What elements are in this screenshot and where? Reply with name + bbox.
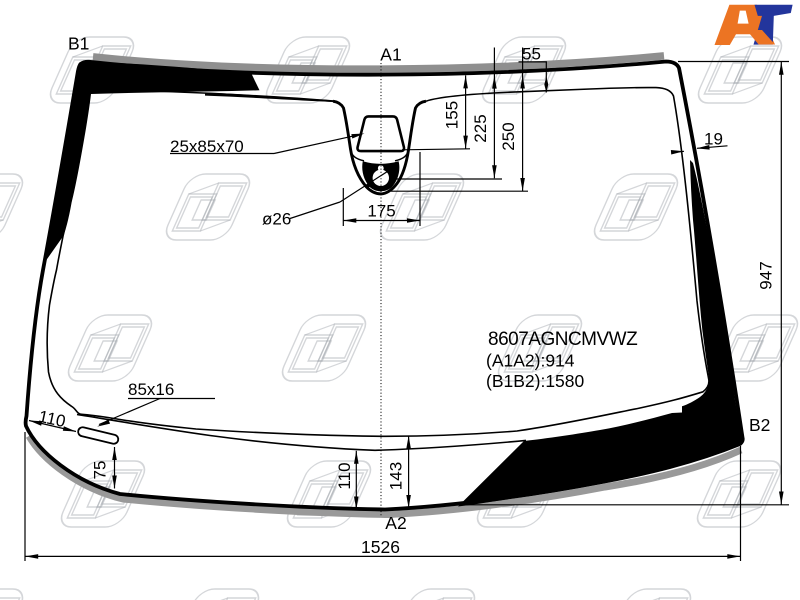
svg-text:A1: A1 [380, 45, 401, 65]
svg-text:143: 143 [387, 462, 406, 490]
svg-text:8607AGNCMVWZ: 8607AGNCMVWZ [488, 329, 638, 350]
svg-text:947: 947 [757, 261, 776, 289]
svg-text:B2: B2 [749, 415, 770, 435]
svg-text:75: 75 [91, 461, 110, 480]
svg-text:(A1A2):914: (A1A2):914 [486, 351, 575, 371]
svg-text:225: 225 [471, 114, 490, 142]
svg-text:1526: 1526 [361, 537, 400, 557]
svg-text:85x16: 85x16 [128, 380, 174, 399]
svg-text:B1: B1 [68, 34, 89, 54]
svg-text:ø26: ø26 [262, 210, 291, 229]
svg-text:175: 175 [367, 202, 395, 221]
svg-text:(B1B2):1580: (B1B2):1580 [486, 371, 585, 391]
svg-text:110: 110 [335, 462, 354, 489]
svg-text:110: 110 [37, 407, 67, 431]
svg-text:250: 250 [499, 122, 518, 150]
svg-text:55: 55 [522, 44, 541, 63]
svg-text:155: 155 [443, 101, 462, 129]
svg-text:A2: A2 [385, 513, 406, 533]
svg-text:19: 19 [704, 130, 723, 149]
